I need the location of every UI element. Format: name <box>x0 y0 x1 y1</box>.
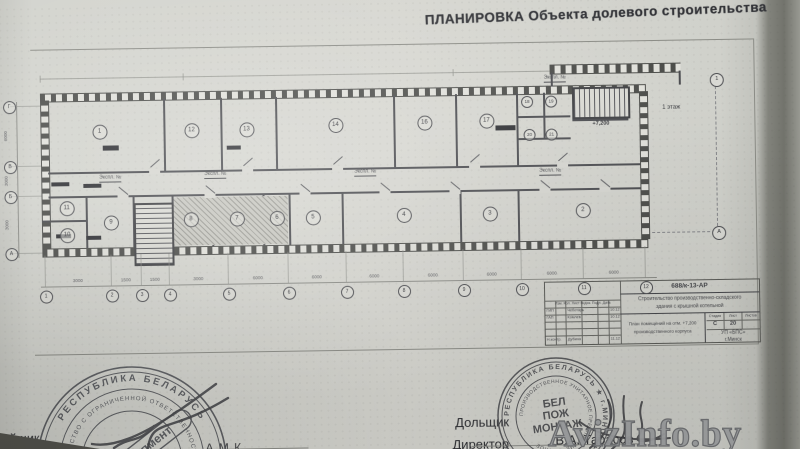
partition-wall <box>42 220 86 222</box>
company-stamp-left: РЕСПУБЛИКА БЕЛАРУСЬ ОБЩЕСТВО С ОГРАНИЧЕН… <box>30 356 240 449</box>
axis-guide-line <box>715 86 718 226</box>
axis-marker: 8 <box>397 284 410 297</box>
tb-sheet-label: Лист <box>724 314 741 318</box>
partition-wall <box>275 97 278 169</box>
partition-wall <box>459 191 461 242</box>
room-number-marker: 11 <box>59 201 74 216</box>
equipment-mark <box>103 145 119 150</box>
axis-marker: 10 <box>515 282 528 295</box>
entrance-canopy <box>550 63 681 75</box>
room-number-marker: 13 <box>239 122 254 137</box>
tb-org-1: УП «БПС» <box>721 330 745 336</box>
axis-marker: 3 <box>135 288 148 301</box>
room-number-marker: 4 <box>396 207 411 222</box>
axis-guide-line <box>110 255 111 286</box>
equipment-mark <box>83 184 101 188</box>
tb-sheet-value: 20 <box>725 321 742 327</box>
partition-wall <box>516 93 519 165</box>
axis-guide-line <box>402 250 403 281</box>
room-tag-label: Экспл. № <box>99 175 121 182</box>
room-number-marker: 3 <box>482 206 497 221</box>
axis-guide-line <box>287 252 288 283</box>
tb-stage-label: Стадия <box>706 314 723 318</box>
dimension-value: 3000 <box>193 276 203 281</box>
dimension-line-left <box>16 102 19 258</box>
tb-row-name: Дубина <box>568 337 598 341</box>
dimension-value: 6000 <box>312 274 322 279</box>
room-number-marker: 10 <box>60 228 75 243</box>
room-number-marker: 19 <box>545 96 557 108</box>
axis-marker: Б <box>4 191 17 204</box>
tb-org-2: г.Минск <box>725 337 742 343</box>
axis-guide-line <box>582 247 583 278</box>
door-swing <box>243 158 253 167</box>
room-number-marker: 7 <box>229 211 244 226</box>
room-tag-label: Экспл. № <box>544 75 566 82</box>
canopy-post <box>679 71 681 85</box>
room-number-marker: 14 <box>328 117 343 132</box>
tb-row-name: Чеботарь <box>567 308 597 312</box>
door-swing <box>470 154 480 163</box>
door-swing <box>333 156 343 165</box>
axis-guide-line <box>44 256 45 287</box>
axis-marker: 1 <box>710 73 724 87</box>
room-number-marker: 18 <box>521 96 533 108</box>
dimension-value: 6000 <box>547 271 557 276</box>
equipment-mark <box>227 145 241 149</box>
exterior-wall-right <box>639 91 650 239</box>
tb-row-role: Н.контр. <box>547 337 567 341</box>
door-gap <box>332 166 343 171</box>
axis-marker: 6 <box>282 286 295 299</box>
title-block: Изм. Кол. Лист №док. Подп. Дата ГИП Чебо… <box>544 278 761 345</box>
axis-guide-line <box>652 231 710 233</box>
staircase-top-right <box>572 86 630 119</box>
partition-wall <box>220 98 223 170</box>
partition-wall <box>86 197 88 248</box>
room-number-marker: 5 <box>305 210 320 225</box>
dimension-value: 3000 <box>73 278 83 283</box>
dimension-value: 6000 <box>487 271 497 276</box>
tb-row-date: 10.12 <box>609 315 620 319</box>
door-gap <box>242 167 253 172</box>
room-number-marker: 6 <box>269 210 284 225</box>
tb-row-date: 11.12 <box>610 337 621 341</box>
equipment-mark <box>86 236 101 240</box>
partition-wall <box>341 193 343 244</box>
tb-row-role: ГАП <box>546 315 566 319</box>
tb-drawing-name-1: План помещений на отм. +7,200 <box>629 320 697 326</box>
axis-marker: 7 <box>340 285 353 298</box>
partition-wall <box>289 194 291 245</box>
room-number-marker: 8 <box>183 212 198 227</box>
tb-row-role: ГИП <box>546 308 566 312</box>
axis-marker: А <box>5 248 18 261</box>
room-number-marker: 9 <box>103 215 118 230</box>
axis-marker: В <box>3 161 16 174</box>
room-tag-label: Экспл. № <box>354 169 376 176</box>
dimension-tick <box>40 76 41 83</box>
room-tag-label: Экспл. № <box>539 168 561 175</box>
dimension-tick <box>183 73 184 80</box>
door-gap <box>149 169 160 174</box>
partition-wall <box>517 190 519 241</box>
axis-marker: Г <box>3 101 16 114</box>
axis-marker: 4 <box>163 288 176 301</box>
dimension-value: 6000 <box>369 273 379 278</box>
room-number-marker: 1 <box>92 124 107 139</box>
dimension-value: 6000 <box>609 270 619 275</box>
axis-guide-line <box>345 251 346 282</box>
tb-stage-value: С <box>707 321 724 327</box>
axis-guide-line <box>644 246 645 277</box>
dimension-value: 6000 <box>428 272 438 277</box>
axis-guide-line <box>520 248 521 279</box>
dimension-value: 1500 <box>121 277 131 282</box>
dimension-tick <box>453 69 454 76</box>
dimension-value: 1500 <box>150 277 160 282</box>
dimension-value: 3000 <box>4 220 9 230</box>
axis-marker: 1 <box>39 290 52 303</box>
room-tag-label: Экспл. № <box>204 172 226 179</box>
dimension-value: 3000 <box>4 176 9 186</box>
dimension-value: 6000 <box>253 275 263 280</box>
door-gap <box>469 164 480 169</box>
partition-wall <box>393 95 396 167</box>
watermark: AvizInfo.by <box>548 412 742 449</box>
floor-label: 1 этаж <box>662 105 680 111</box>
axis-guide-line <box>462 249 463 280</box>
axis-marker: 2 <box>105 289 118 302</box>
axis-marker: А <box>712 226 726 240</box>
tb-project-code: 688/к-13-АР <box>620 279 759 294</box>
axis-marker: 9 <box>457 283 470 296</box>
axis-marker: 5 <box>222 287 235 300</box>
tb-project-name-1: Строительство производственно-складского <box>638 295 741 303</box>
dimension-value: 6000 <box>3 131 8 141</box>
photo-of-document: ПЛАНИРОВКА Объекта долевого строительств… <box>0 0 800 449</box>
room-number-marker: 17 <box>479 113 494 128</box>
equipment-mark <box>51 182 69 186</box>
tb-project-name-2: здания с крышной котельной <box>656 303 723 310</box>
door-swing <box>150 159 160 168</box>
tb-drawing-name-2: производственного корпуса <box>634 328 692 334</box>
door-swing <box>558 153 568 162</box>
tb-row-date: 10.12 <box>609 308 620 312</box>
partition-wall <box>455 94 458 166</box>
tb-sheets-label: Листов <box>742 313 759 317</box>
tb-row-name: Комлев <box>567 315 597 319</box>
axis-guide-line <box>227 253 228 284</box>
partition-wall <box>163 99 166 171</box>
room-number-marker: 16 <box>417 115 432 130</box>
corridor-wall-bottom <box>49 187 641 198</box>
equipment-mark <box>495 125 515 130</box>
room-number-marker: 12 <box>184 123 199 138</box>
room-number-marker: 21 <box>546 129 558 141</box>
exterior-wall-left <box>40 100 51 248</box>
room-number-marker: 20 <box>524 129 536 141</box>
level-mark: +7,200 <box>592 121 609 127</box>
room-number-marker: 2 <box>575 203 590 218</box>
